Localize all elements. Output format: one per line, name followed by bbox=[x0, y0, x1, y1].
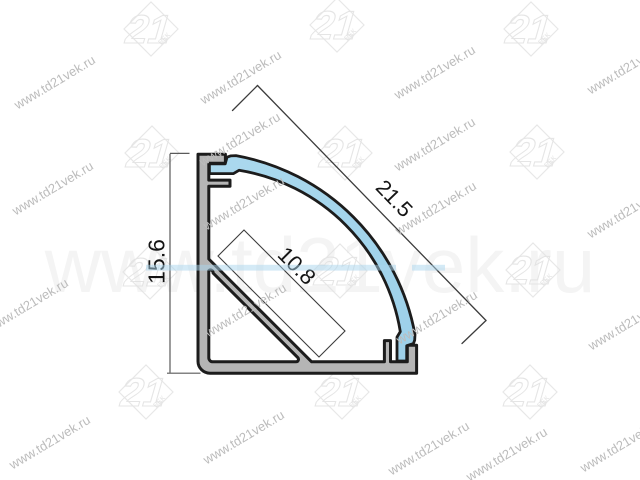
svg-text:15.6: 15.6 bbox=[144, 239, 170, 284]
